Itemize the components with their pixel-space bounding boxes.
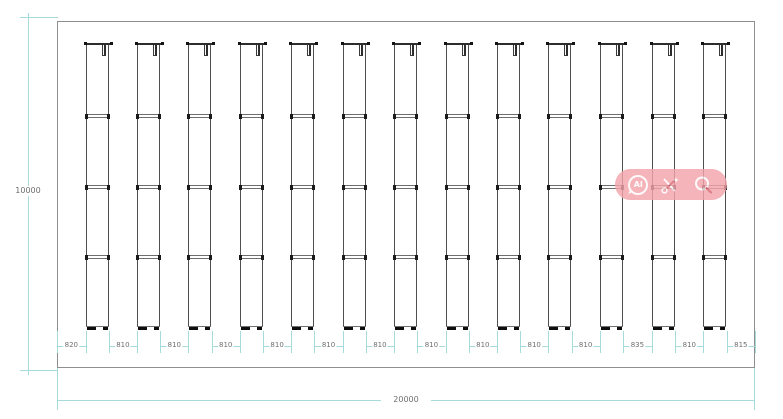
- rack-foot: [653, 327, 662, 330]
- extension-line: [314, 331, 315, 353]
- rack-hook: [256, 45, 260, 56]
- rack-foot: [103, 327, 108, 330]
- extension-line: [497, 331, 498, 353]
- shelf-beam: [394, 114, 417, 118]
- joint-dot: [315, 42, 318, 45]
- rack-foot: [498, 327, 507, 330]
- shelf-beam: [240, 185, 263, 189]
- shelf-beam: [703, 114, 726, 118]
- joint-dot: [135, 42, 138, 45]
- shelf-beam: [497, 114, 520, 118]
- shelf-beam: [548, 255, 571, 259]
- extension-line: [623, 331, 624, 353]
- rack-foot: [463, 327, 468, 330]
- shelf-beam: [137, 114, 160, 118]
- ai-chat-icon[interactable]: AI: [628, 175, 648, 195]
- storage-rack: [240, 43, 263, 330]
- bay-dimension-label: 820: [64, 341, 79, 350]
- extension-line: [548, 331, 549, 353]
- extension-line: [675, 331, 676, 353]
- shelf-beam: [548, 185, 571, 189]
- rack-top-beam: [187, 43, 214, 45]
- bay-dimension-label: 810: [218, 341, 233, 350]
- rack-top-beam: [702, 43, 729, 45]
- extension-line: [366, 331, 367, 353]
- rack-top-beam: [496, 43, 523, 45]
- extension-line: [703, 331, 704, 353]
- joint-dot: [367, 42, 370, 45]
- speech-bubble-tail: [628, 190, 633, 195]
- width-dim-ext-left: [57, 368, 58, 410]
- rack-hook: [410, 45, 414, 56]
- extension-line: [86, 331, 87, 353]
- rack-foot: [704, 327, 713, 330]
- shelf-beam: [343, 255, 366, 259]
- rack-foot: [292, 327, 301, 330]
- rack-foot: [411, 327, 416, 330]
- rack-top-beam: [239, 43, 266, 45]
- bay-dimension-label: 810: [527, 341, 542, 350]
- shelf-beam: [188, 255, 211, 259]
- rack-foot: [344, 327, 353, 330]
- rack-top-beam: [599, 43, 626, 45]
- rack-foot: [669, 327, 674, 330]
- shelf-beam: [394, 255, 417, 259]
- rack-top-beam: [290, 43, 317, 45]
- extension-line: [417, 331, 418, 353]
- shelf-beam: [548, 114, 571, 118]
- scissors-icon[interactable]: [659, 174, 681, 196]
- bay-dimension-label: 810: [167, 341, 182, 350]
- shelf-beam: [600, 255, 623, 259]
- ai-label: AI: [634, 180, 643, 189]
- shelf-beam: [394, 185, 417, 189]
- shelf-beam: [703, 255, 726, 259]
- rack-hook: [564, 45, 568, 56]
- joint-dot: [161, 42, 164, 45]
- joint-dot: [495, 42, 498, 45]
- rack-foot: [154, 327, 159, 330]
- storage-rack: [394, 43, 417, 330]
- shelf-beam: [86, 185, 109, 189]
- rack-foot: [360, 327, 365, 330]
- storage-rack: [343, 43, 366, 330]
- shelf-beam: [497, 185, 520, 189]
- joint-dot: [598, 42, 601, 45]
- extension-line: [446, 331, 447, 353]
- rack-hook: [719, 45, 723, 56]
- joint-dot: [289, 42, 292, 45]
- rack-foot: [138, 327, 147, 330]
- bay-dimension-label: 810: [424, 341, 439, 350]
- extension-line: [727, 331, 728, 353]
- extension-line: [652, 331, 653, 353]
- storage-rack: [497, 43, 520, 330]
- extension-line: [109, 331, 110, 353]
- shelf-beam: [652, 255, 675, 259]
- shelf-beam: [291, 114, 314, 118]
- extension-line: [755, 331, 756, 353]
- joint-dot: [341, 42, 344, 45]
- shelf-beam: [343, 185, 366, 189]
- bay-dimension-label: 810: [578, 341, 593, 350]
- shelf-beam: [240, 114, 263, 118]
- shelf-beam: [343, 114, 366, 118]
- joint-dot: [186, 42, 189, 45]
- rack-foot: [308, 327, 313, 330]
- rack-foot: [257, 327, 262, 330]
- joint-dot: [470, 42, 473, 45]
- extension-line: [160, 331, 161, 353]
- bay-dimension-label: 810: [372, 341, 387, 350]
- extension-line: [263, 331, 264, 353]
- joint-dot: [546, 42, 549, 45]
- joint-dot: [701, 42, 704, 45]
- rack-foot: [395, 327, 404, 330]
- joint-dot: [444, 42, 447, 45]
- rack-hook: [616, 45, 620, 56]
- rack-foot: [189, 327, 198, 330]
- rack-foot: [87, 327, 96, 330]
- bay-dimension-label: 835: [630, 341, 645, 350]
- rack-hook: [204, 45, 208, 56]
- extension-line: [240, 331, 241, 353]
- shelf-beam: [291, 255, 314, 259]
- extension-line: [520, 331, 521, 353]
- joint-dot: [110, 42, 113, 45]
- rack-foot: [241, 327, 250, 330]
- shelf-beam: [86, 114, 109, 118]
- bay-dimension-label: 810: [321, 341, 336, 350]
- width-dim-ext-right: [754, 368, 755, 410]
- joint-dot: [624, 42, 627, 45]
- shelf-beam: [497, 255, 520, 259]
- rack-foot: [617, 327, 622, 330]
- magnifier-icon[interactable]: [692, 174, 714, 196]
- shelf-beam: [86, 255, 109, 259]
- extension-line: [212, 331, 213, 353]
- extension-line: [57, 331, 58, 353]
- rack-hook: [513, 45, 517, 56]
- rack-hook: [102, 45, 106, 56]
- shelf-beam: [446, 185, 469, 189]
- height-dim-label: 10000: [10, 186, 46, 196]
- shelf-beam: [446, 255, 469, 259]
- joint-dot: [264, 42, 267, 45]
- joint-dot: [676, 42, 679, 45]
- rack-foot: [447, 327, 456, 330]
- storage-rack: [446, 43, 469, 330]
- rack-hook: [668, 45, 672, 56]
- shelf-beam: [188, 114, 211, 118]
- height-dim-ext-top: [20, 17, 58, 18]
- joint-dot: [392, 42, 395, 45]
- rack-top-beam: [393, 43, 420, 45]
- joint-dot: [521, 42, 524, 45]
- extension-line: [137, 331, 138, 353]
- extension-line: [469, 331, 470, 353]
- joint-dot: [418, 42, 421, 45]
- joint-dot: [727, 42, 730, 45]
- bay-dimension-label: 810: [475, 341, 490, 350]
- extension-line: [600, 331, 601, 353]
- bay-dimension-label: 810: [115, 341, 130, 350]
- shelf-beam: [240, 255, 263, 259]
- extension-line: [343, 331, 344, 353]
- bay-dimension-label: 810: [682, 341, 697, 350]
- rack-hook: [462, 45, 466, 56]
- shelf-beam: [652, 114, 675, 118]
- bay-dimension-label: 815: [733, 341, 748, 350]
- shelf-beam: [446, 114, 469, 118]
- extension-line: [188, 331, 189, 353]
- storage-rack: [291, 43, 314, 330]
- extension-line: [291, 331, 292, 353]
- rack-hook: [153, 45, 157, 56]
- rack-foot: [601, 327, 610, 330]
- storage-rack: [86, 43, 109, 330]
- joint-dot: [238, 42, 241, 45]
- shelf-beam: [291, 185, 314, 189]
- storage-rack: [137, 43, 160, 330]
- bay-dimension-label: 810: [269, 341, 284, 350]
- rack-foot: [205, 327, 210, 330]
- cad-canvas: 8208108108108108108108108108108108358108…: [0, 0, 783, 419]
- rack-top-beam: [85, 43, 112, 45]
- rack-hook: [307, 45, 311, 56]
- shelf-beam: [188, 185, 211, 189]
- extension-line: [572, 331, 573, 353]
- rack-foot: [565, 327, 570, 330]
- rack-foot: [720, 327, 725, 330]
- shelf-beam: [137, 255, 160, 259]
- joint-dot: [212, 42, 215, 45]
- height-dim-ext-bottom: [20, 370, 58, 371]
- rack-top-beam: [445, 43, 472, 45]
- shelf-beam: [600, 114, 623, 118]
- storage-rack: [548, 43, 571, 330]
- joint-dot: [84, 42, 87, 45]
- storage-rack: [188, 43, 211, 330]
- joint-dot: [572, 42, 575, 45]
- width-dim-label: 20000: [381, 395, 431, 405]
- shelf-beam: [137, 185, 160, 189]
- rack-top-beam: [136, 43, 163, 45]
- rack-foot: [514, 327, 519, 330]
- rack-top-beam: [342, 43, 369, 45]
- joint-dot: [650, 42, 653, 45]
- rack-foot: [549, 327, 558, 330]
- ai-toolbar-watermark: AI: [615, 169, 727, 200]
- rack-top-beam: [547, 43, 574, 45]
- extension-line: [394, 331, 395, 353]
- rack-hook: [359, 45, 363, 56]
- rack-top-beam: [651, 43, 678, 45]
